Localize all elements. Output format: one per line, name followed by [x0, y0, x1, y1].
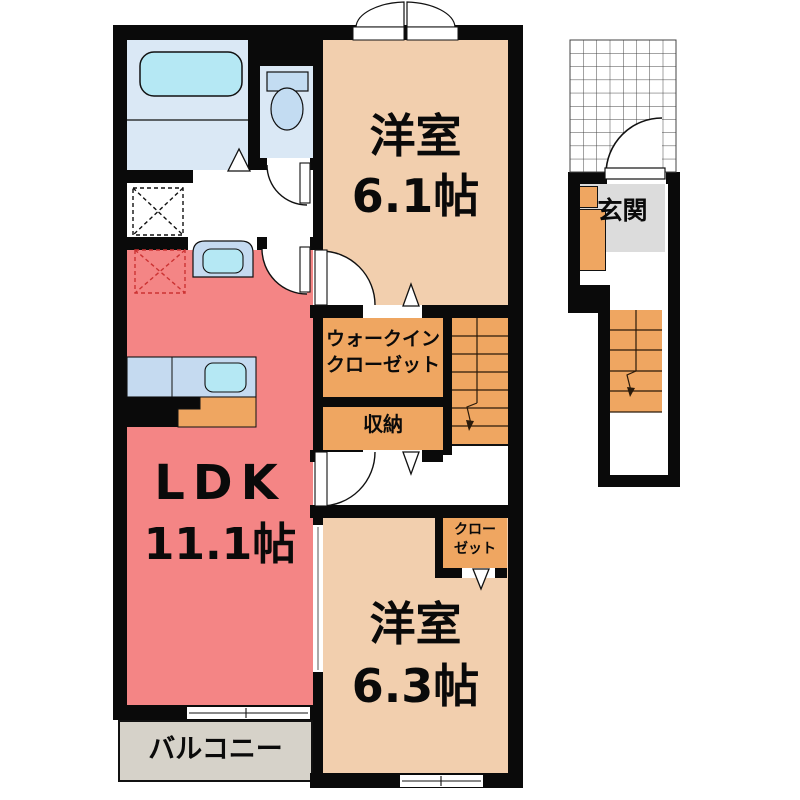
- wall: [323, 397, 443, 407]
- storage-label: 収納: [323, 414, 443, 435]
- toilet-room-area: [260, 66, 313, 158]
- balcony-label: バルコニー: [118, 736, 313, 764]
- closet-label-line1: クロー: [443, 523, 507, 538]
- wall: [568, 285, 610, 313]
- bathroom-door-opening: [193, 170, 250, 183]
- stairs-entry-area: [610, 310, 662, 412]
- wic-label-line2: クローゼット: [323, 356, 443, 376]
- wall: [598, 475, 680, 487]
- wall: [598, 313, 610, 487]
- ldk-name: LDK: [127, 458, 313, 508]
- balcony-window: [187, 707, 310, 719]
- closet-label-line2: ゼット: [443, 542, 507, 557]
- wall: [313, 318, 323, 452]
- wall: [113, 25, 127, 720]
- storage-door-opening: [363, 450, 422, 462]
- wall: [248, 40, 323, 66]
- wic-door-opening: [363, 305, 422, 318]
- washing-machine-space: [133, 188, 183, 235]
- wall: [310, 505, 523, 518]
- bedroom-upper-size: 6.1帖: [323, 172, 508, 220]
- wall: [113, 25, 523, 40]
- toilet-door-opening: [267, 158, 310, 170]
- ldk-door-opening: [267, 237, 310, 250]
- entry-door-arc: [605, 118, 665, 179]
- floorplan-canvas: 洋室 6.1帖 LDK 11.1帖 ウォークイン クローゼット 収納 クロー ゼ…: [0, 0, 800, 800]
- bedroom-upper-name: 洋室: [323, 112, 508, 160]
- closet-door-opening: [462, 568, 495, 578]
- entry-door-opening: [607, 172, 666, 184]
- bedroom-lower-name: 洋室: [323, 600, 508, 648]
- porch-grid: [570, 40, 676, 172]
- vanity-recess: [188, 237, 257, 250]
- ldk-size: 11.1帖: [120, 522, 320, 568]
- wall: [435, 518, 443, 568]
- wall: [443, 318, 452, 455]
- bathroom-area: [127, 40, 248, 170]
- wall: [568, 172, 580, 287]
- bedroom-lower-size: 6.3帖: [323, 662, 508, 710]
- wall: [313, 40, 323, 250]
- wall: [508, 25, 523, 788]
- bedroom-lower-window: [400, 775, 483, 787]
- wall: [668, 172, 680, 487]
- wic-label-line1: ウォークイン: [323, 330, 443, 350]
- entrance-label: 玄関: [580, 198, 665, 224]
- stairs-main-area: [452, 318, 508, 445]
